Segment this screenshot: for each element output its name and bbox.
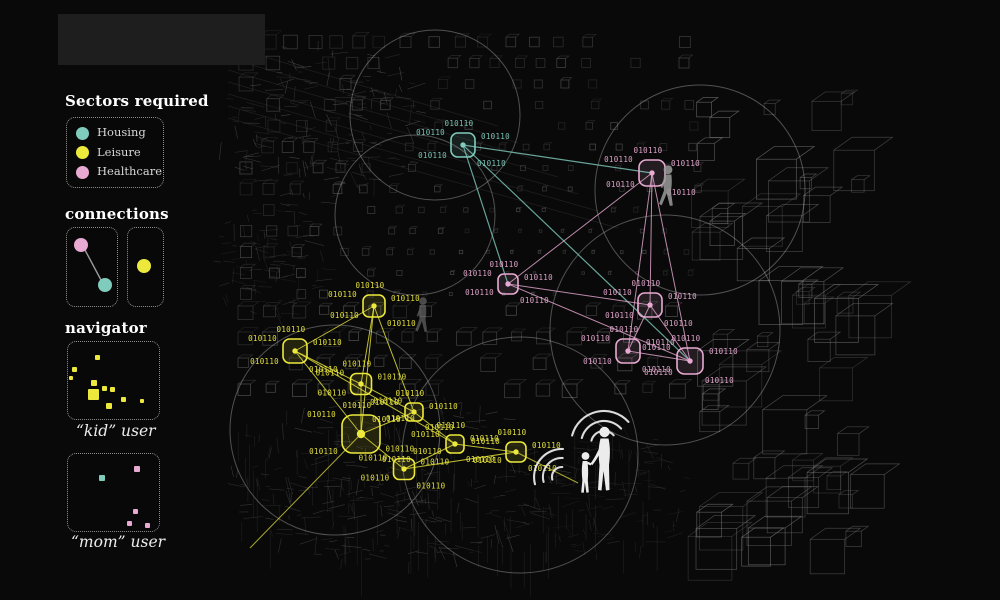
sidebar: Sectors required HousingLeisureHealthcar… (0, 0, 1000, 600)
mom-user-label: “mom” user (71, 533, 165, 551)
minimap-square (106, 403, 112, 409)
sector-label: Housing (97, 127, 146, 139)
sectors-required-title: Sectors required (65, 92, 209, 110)
minimap-square (99, 475, 105, 481)
infographic-canvas: 0101100101100101100101100101100101100101… (0, 0, 1000, 600)
minimap-square (134, 466, 140, 472)
minimap-square (88, 389, 99, 400)
sector-legend-row-healthcare: Healthcare (76, 166, 163, 179)
leisure-dot-icon (76, 146, 89, 159)
kid-user-label: “kid” user (76, 422, 156, 440)
sector-legend-row-leisure: Leisure (76, 146, 163, 159)
connection-example-graphic (128, 228, 163, 306)
minimap-square (91, 380, 97, 386)
connection-example-graphic (67, 228, 117, 306)
connection-example-linked (66, 227, 118, 307)
minimap-square (72, 367, 77, 372)
connection-line (85, 250, 101, 280)
minimap-square (110, 387, 115, 392)
sector-legend-row-housing: Housing (76, 127, 163, 140)
connections-title: connections (65, 205, 169, 223)
housing-dot-icon (76, 127, 89, 140)
minimap-square (121, 397, 126, 402)
sector-label: Healthcare (97, 166, 162, 178)
minimap-square (102, 386, 107, 391)
connection-example-single (127, 227, 164, 307)
minimap-square (127, 521, 132, 526)
navigator-title: navigator (65, 319, 147, 337)
sector-legend: HousingLeisureHealthcare (66, 117, 164, 188)
minimap-square (69, 376, 73, 380)
leisure-dot-icon (137, 259, 151, 273)
sector-label: Leisure (97, 147, 141, 159)
healthcare-dot-icon (74, 238, 88, 252)
minimap-square (140, 399, 144, 403)
navigator-kid-minimap[interactable] (67, 341, 160, 420)
title-block (58, 14, 265, 65)
housing-dot-icon (98, 278, 112, 292)
minimap-square (133, 509, 138, 514)
navigator-mom-minimap[interactable] (67, 453, 160, 532)
minimap-square (95, 355, 100, 360)
healthcare-dot-icon (76, 166, 89, 179)
minimap-square (145, 523, 150, 528)
